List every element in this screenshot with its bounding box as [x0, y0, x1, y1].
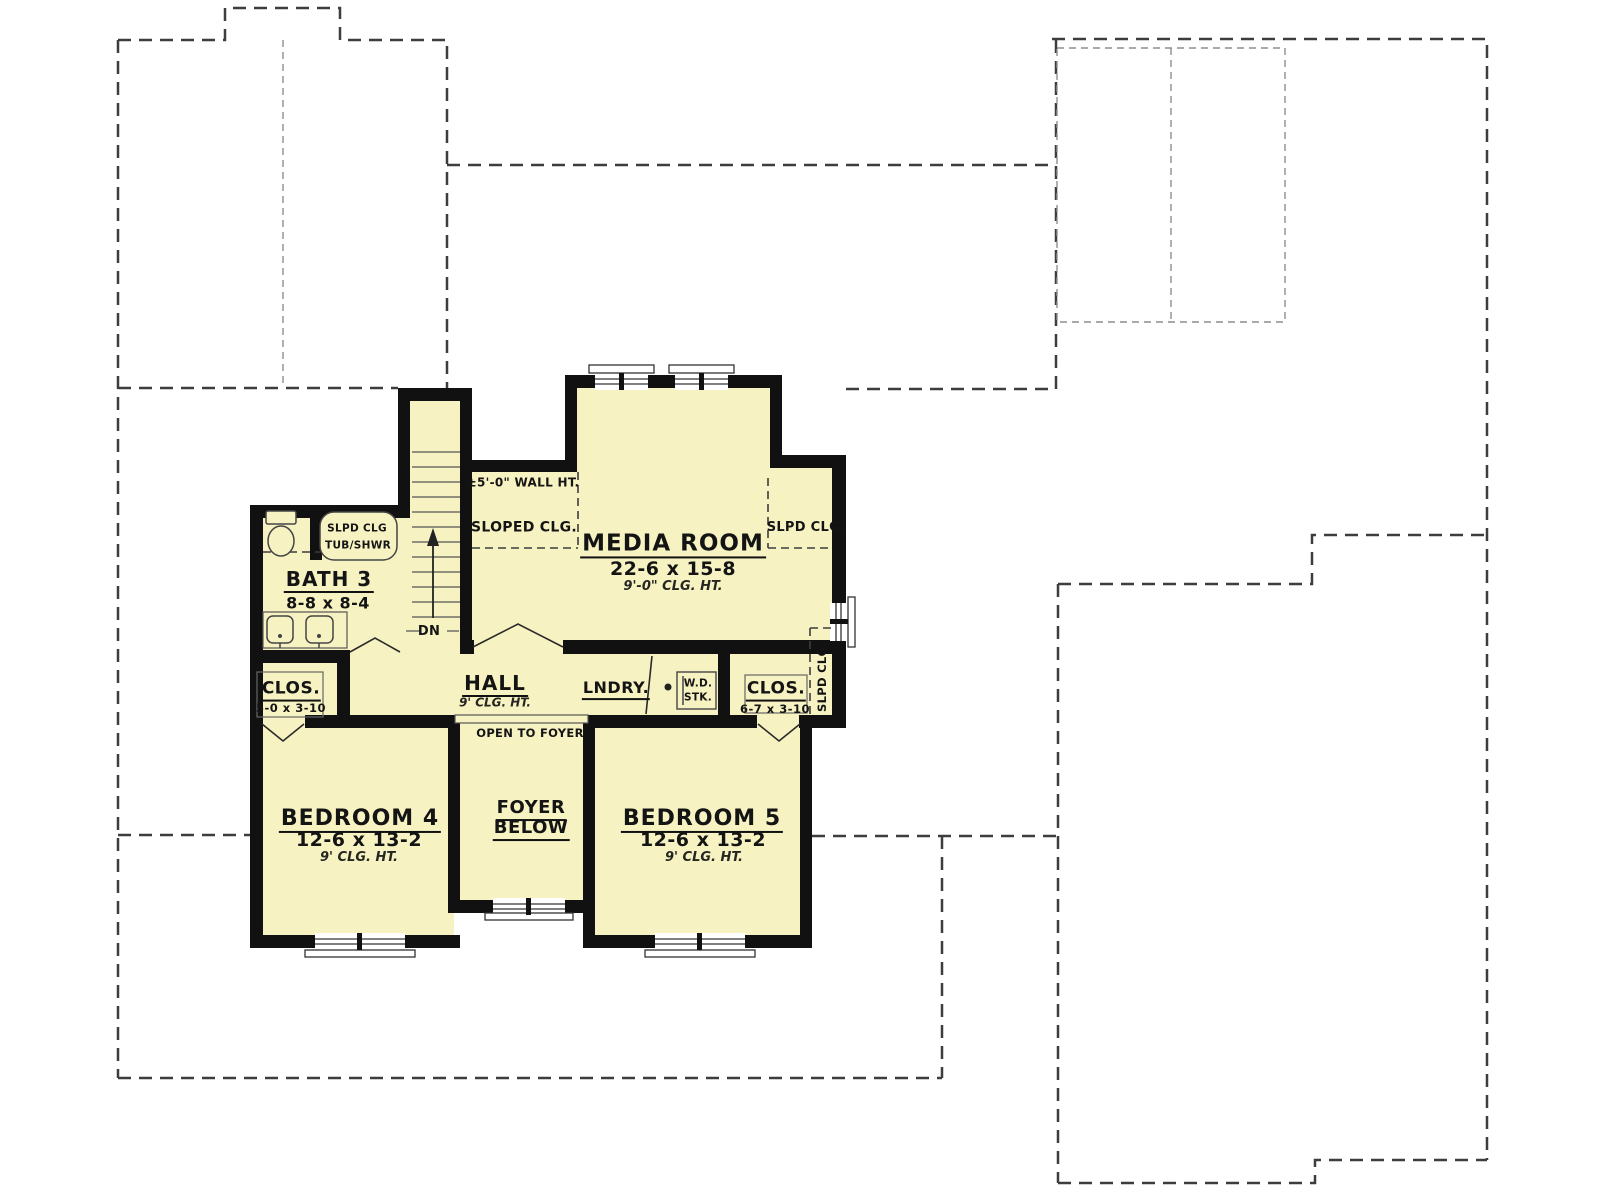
toilet-bowl [268, 526, 294, 556]
toilet-tank [266, 511, 296, 524]
floor-plan-page: MEDIA ROOM 22-6 x 15-8 9'-0" CLG. HT. ±5… [0, 0, 1600, 1200]
roof-outline-light [283, 40, 1285, 388]
open-to-foyer-edge [455, 715, 588, 723]
tub [320, 512, 397, 560]
floor-plan-drawing [0, 0, 1600, 1200]
